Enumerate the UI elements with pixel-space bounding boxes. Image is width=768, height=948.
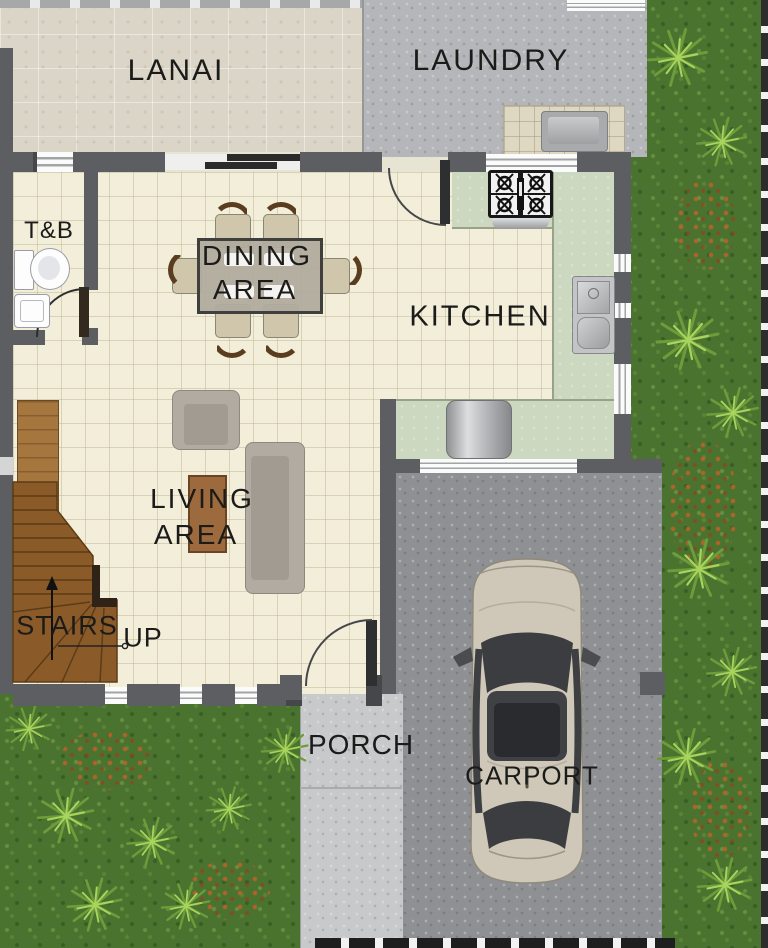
plant-icon bbox=[255, 720, 315, 780]
plant-icon bbox=[700, 640, 764, 704]
armchair-seat bbox=[184, 404, 228, 445]
label-stairs-up: UP bbox=[123, 623, 163, 654]
label-laundry: LAUNDRY bbox=[413, 44, 570, 78]
plant-icon bbox=[700, 380, 766, 446]
plant-icon bbox=[648, 300, 728, 380]
plant-icon bbox=[0, 700, 58, 758]
label-stairs: STAIRS bbox=[16, 611, 118, 642]
toilet-bowl bbox=[38, 256, 60, 280]
stove-icon bbox=[488, 170, 553, 218]
sofa bbox=[245, 442, 305, 594]
bathroom-sink-icon bbox=[14, 294, 50, 328]
sink-basin bbox=[20, 300, 44, 322]
plant-icon bbox=[30, 780, 102, 852]
car-mirror bbox=[453, 647, 473, 667]
stove-tray bbox=[492, 218, 549, 229]
plant-icon bbox=[690, 110, 754, 174]
label-carport: CARPORT bbox=[465, 761, 599, 792]
plant-icon bbox=[60, 870, 130, 940]
plant-icon bbox=[650, 720, 724, 794]
label-lanai: LANAI bbox=[128, 54, 225, 88]
sofa-seat bbox=[251, 456, 289, 580]
floor-plan: LANAI LAUNDRY T&B DINING AREA KITCHEN LI… bbox=[0, 0, 768, 948]
label-toilet-bath: T&B bbox=[24, 217, 74, 245]
door-arcs bbox=[0, 0, 768, 948]
sink-drain bbox=[588, 288, 599, 299]
plant-icon bbox=[120, 810, 184, 874]
plant-icon bbox=[660, 530, 738, 608]
label-dining-line1: DINING bbox=[202, 240, 312, 272]
refrigerator-icon bbox=[446, 400, 512, 459]
plant-icon bbox=[155, 875, 217, 937]
label-porch: PORCH bbox=[308, 729, 414, 761]
toilet-icon bbox=[30, 248, 70, 290]
label-living-line2: AREA bbox=[154, 519, 238, 551]
label-dining-line2: AREA bbox=[213, 274, 297, 306]
plant-icon bbox=[200, 780, 258, 838]
label-kitchen: KITCHEN bbox=[409, 301, 550, 334]
car bbox=[447, 551, 607, 891]
car-mirror bbox=[581, 647, 601, 667]
label-living-line1: LIVING bbox=[150, 483, 254, 515]
armchair bbox=[172, 390, 240, 450]
plant-icon bbox=[640, 20, 716, 96]
kitchen-sink-icon bbox=[572, 276, 615, 354]
plant-icon bbox=[690, 850, 760, 920]
sink-basin bbox=[577, 317, 610, 349]
